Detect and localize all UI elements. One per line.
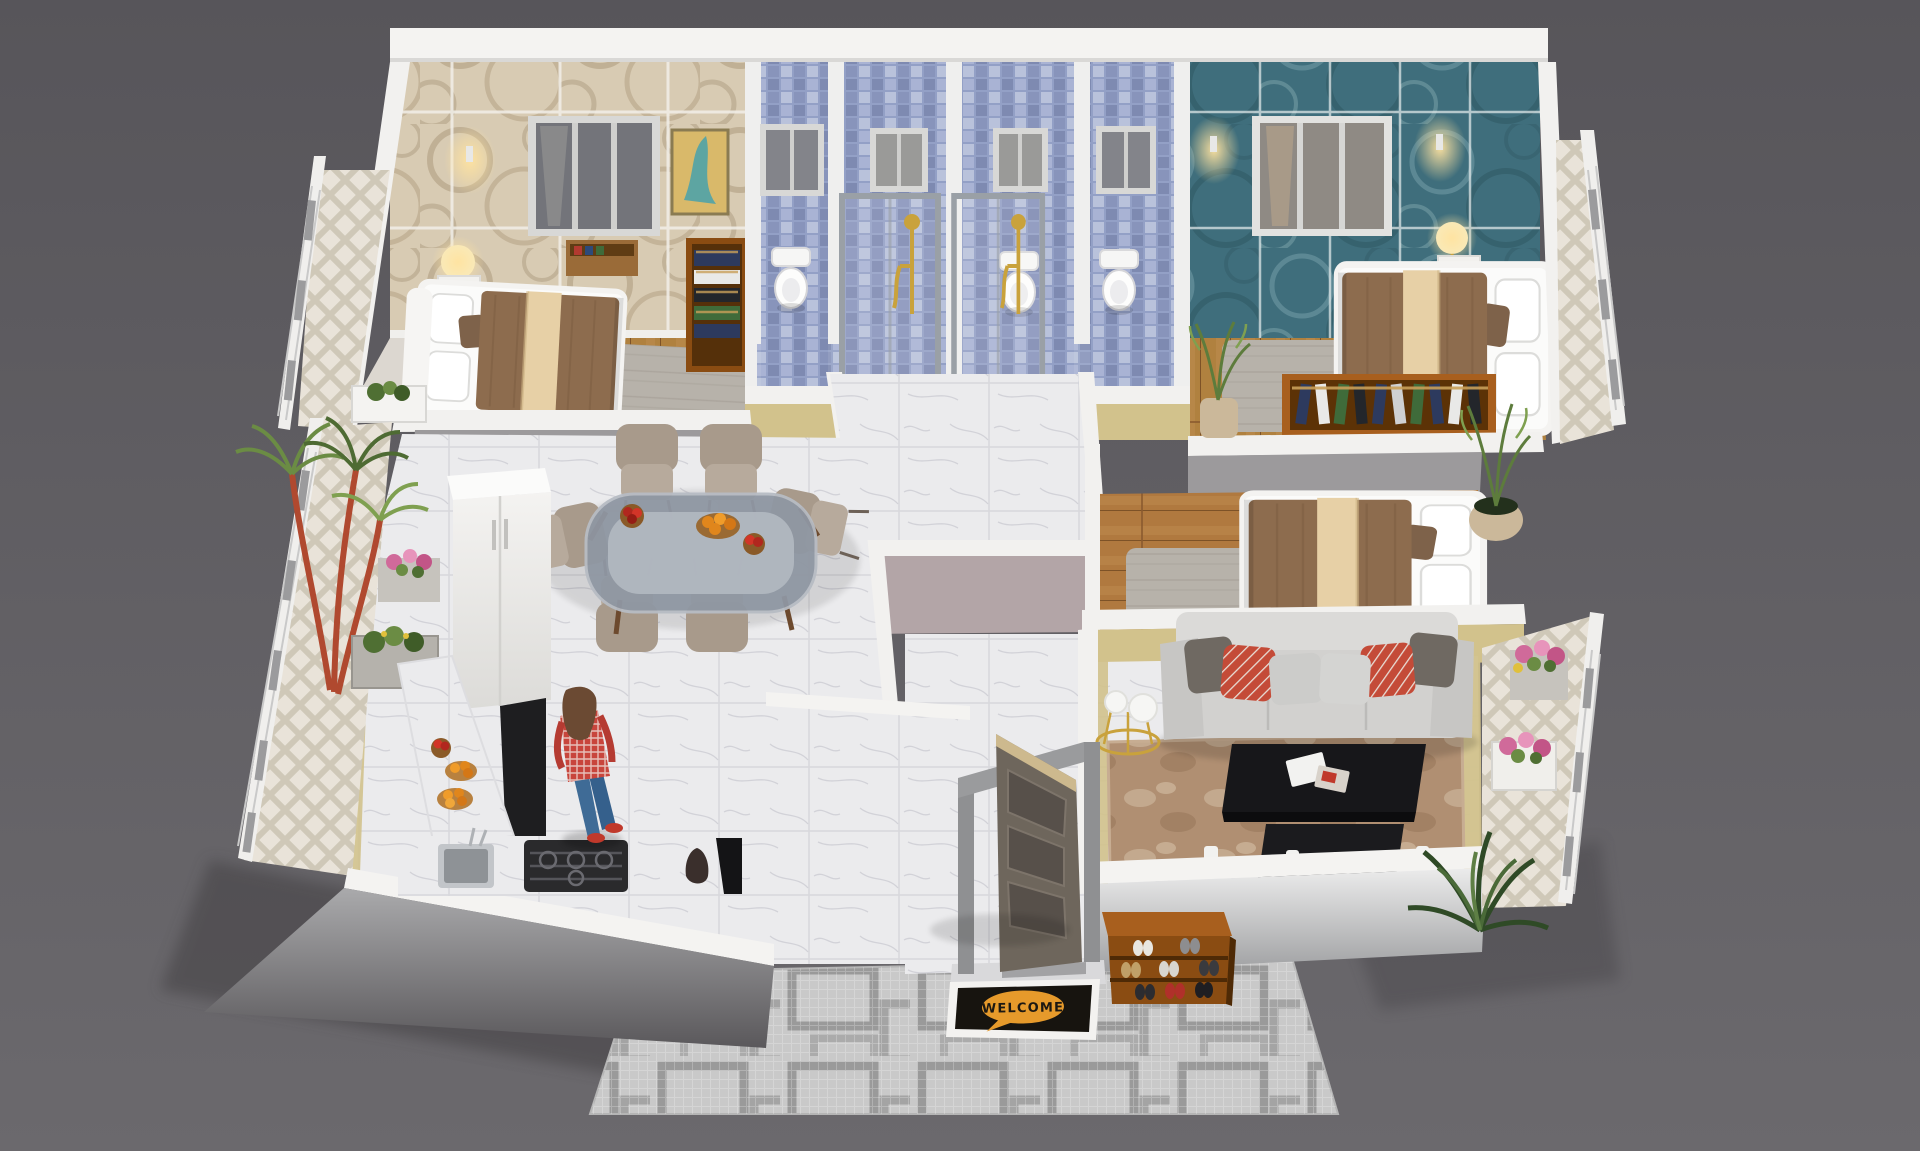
master-wardrobe [686, 238, 748, 372]
wall-art [672, 130, 728, 214]
kitchen-cooktop [524, 840, 628, 892]
floor-plan-render: WELCOME [0, 0, 1920, 1151]
hall-mauve-wall [856, 556, 1092, 634]
vase [1105, 691, 1127, 713]
welcome-text: WELCOME [982, 1000, 1065, 1016]
sofa-pillow-red [1220, 644, 1277, 702]
bedroom-teal [1188, 62, 1554, 440]
master-dresser [566, 240, 638, 276]
teal-window [1252, 116, 1392, 236]
building [204, 28, 1626, 1048]
welcome-mat: WELCOME [946, 979, 1100, 1040]
shoe-rack-top [1102, 912, 1232, 936]
teal-sconce-left [1188, 116, 1240, 184]
door-frame-right [1084, 742, 1100, 962]
sofa [1158, 612, 1478, 764]
wall-sconce [444, 126, 496, 194]
shoe-rack [1102, 912, 1236, 1006]
bedroom-master [352, 62, 748, 430]
back-wall-cap [390, 28, 1548, 62]
coffee-table [1222, 744, 1426, 822]
corridor-floor [830, 374, 1092, 540]
gray-wall-guest [1188, 452, 1482, 496]
shower-2 [954, 196, 1042, 386]
master-window [528, 116, 660, 236]
back-wall [390, 28, 1548, 63]
apartment-3d-svg: WELCOME [0, 0, 1920, 1151]
fridge [447, 468, 551, 710]
master-bed [411, 278, 628, 426]
teal-sconce-right [1414, 114, 1466, 182]
shower-1 [842, 196, 938, 386]
balcony-nw-planter [352, 381, 426, 422]
